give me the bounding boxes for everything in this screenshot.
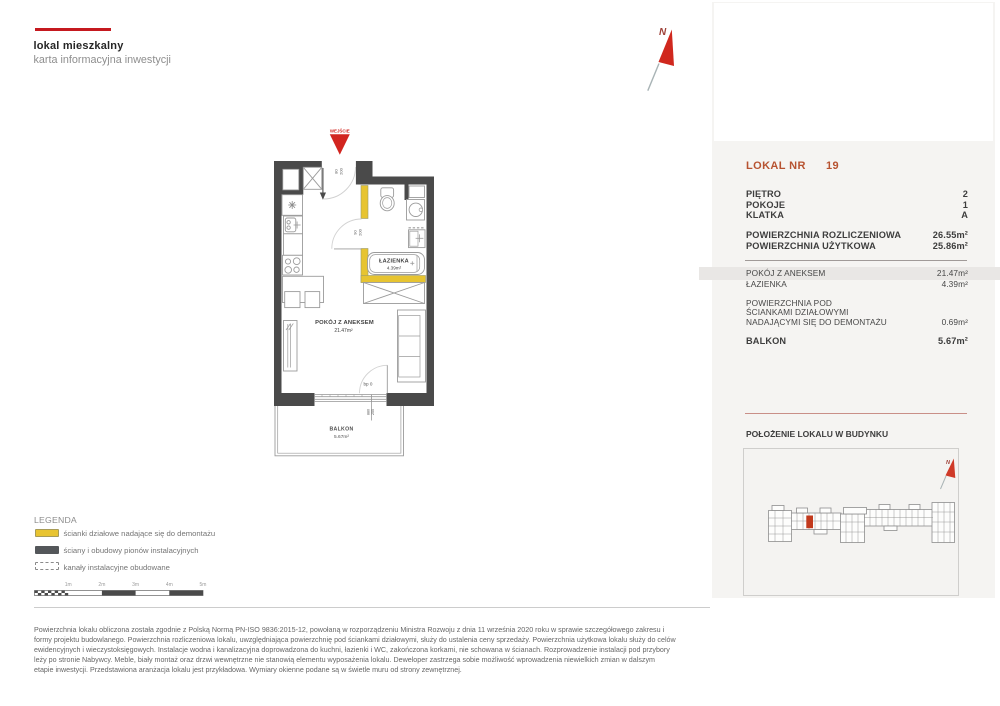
svg-text:POKÓJ Z ANEKSEM: POKÓJ Z ANEKSEM: [315, 318, 374, 326]
svg-text:5m: 5m: [200, 582, 207, 588]
svg-text:200: 200: [339, 167, 344, 174]
svg-text:5.67m²: 5.67m²: [334, 434, 349, 440]
svg-text:BALKON: BALKON: [330, 426, 354, 432]
svg-text:200: 200: [358, 228, 363, 235]
svg-text:ŁAZIENKA: ŁAZIENKA: [379, 258, 409, 264]
svg-text:2m: 2m: [98, 582, 105, 588]
svg-text:4.39m²: 4.39m²: [387, 265, 402, 270]
svg-text:4m: 4m: [166, 582, 173, 588]
svg-text:3m: 3m: [132, 582, 139, 588]
svg-text:1m: 1m: [65, 582, 72, 588]
svg-text:255: 255: [371, 409, 375, 415]
svg-text:N: N: [946, 460, 951, 466]
svg-text:bp 0: bp 0: [364, 382, 373, 387]
svg-text:WEJŚCIE: WEJŚCIE: [330, 129, 350, 134]
svg-text:N: N: [659, 27, 667, 38]
svg-text:21.47m²: 21.47m²: [334, 328, 353, 334]
